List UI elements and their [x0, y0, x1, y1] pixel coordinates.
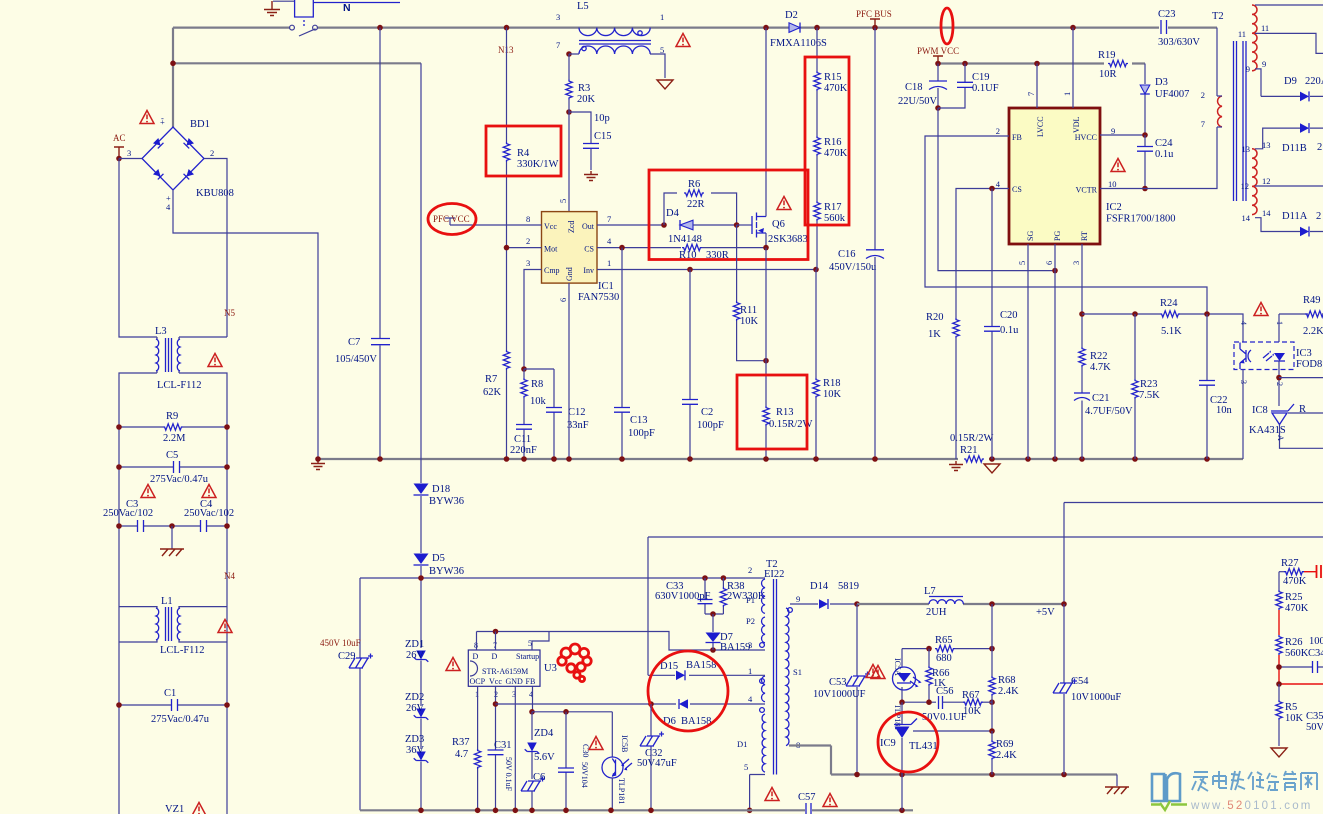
- svg-text:D1: D1: [737, 739, 747, 749]
- svg-text:D5: D5: [432, 553, 445, 564]
- svg-text:D11B: D11B: [1282, 143, 1307, 154]
- svg-text:R67: R67: [962, 690, 980, 701]
- svg-text:C19: C19: [972, 72, 990, 83]
- svg-text:470K: 470K: [1285, 603, 1309, 614]
- svg-text:L5: L5: [577, 1, 589, 12]
- svg-text:C16: C16: [838, 249, 856, 260]
- svg-text:10K: 10K: [1285, 713, 1304, 724]
- svg-text:C57: C57: [798, 792, 816, 803]
- svg-text:FMXA1106S: FMXA1106S: [770, 38, 827, 49]
- svg-text:TL431: TL431: [909, 741, 938, 752]
- svg-text:BA159: BA159: [720, 642, 750, 653]
- svg-text:10K: 10K: [823, 389, 842, 400]
- svg-text:3: 3: [1071, 261, 1081, 265]
- svg-text:C29: C29: [338, 651, 356, 662]
- svg-text:FB: FB: [1012, 133, 1022, 142]
- svg-text:220A: 220A: [1305, 76, 1323, 87]
- svg-text:14: 14: [1242, 213, 1251, 223]
- svg-text:D15: D15: [660, 661, 678, 672]
- svg-text:C21: C21: [1092, 393, 1110, 404]
- svg-text:R3: R3: [578, 83, 590, 94]
- svg-text:5: 5: [1017, 261, 1027, 265]
- svg-text:12: 12: [1241, 181, 1250, 191]
- svg-text:100pF: 100pF: [628, 428, 655, 439]
- svg-text:100pF: 100pF: [697, 420, 724, 431]
- svg-text:C18: C18: [905, 82, 923, 93]
- svg-text:C2: C2: [701, 407, 713, 418]
- svg-text:D11A: D11A: [1282, 211, 1308, 222]
- svg-text:220nF: 220nF: [510, 445, 537, 456]
- svg-text:R5: R5: [1285, 702, 1297, 713]
- svg-text:UF4007: UF4007: [1155, 89, 1189, 100]
- svg-text:FOD81: FOD81: [1296, 359, 1323, 370]
- svg-text:2UH: 2UH: [926, 607, 947, 618]
- svg-text:LVCC: LVCC: [1036, 116, 1045, 137]
- svg-text:303/630V: 303/630V: [1158, 37, 1200, 48]
- svg-text:S1: S1: [793, 667, 802, 677]
- svg-text:R24: R24: [1160, 298, 1178, 309]
- svg-text:C7: C7: [348, 337, 360, 348]
- svg-text:U3: U3: [544, 663, 557, 674]
- svg-text:AC: AC: [113, 133, 126, 143]
- svg-text:Vcc: Vcc: [544, 222, 557, 231]
- svg-text:N5: N5: [224, 308, 235, 318]
- svg-text:4.7K: 4.7K: [1090, 362, 1111, 373]
- svg-text:KBU808: KBU808: [196, 188, 234, 199]
- svg-text:BD1: BD1: [190, 119, 210, 130]
- svg-text:13: 13: [1262, 140, 1271, 150]
- svg-text:TLP181: TLP181: [617, 778, 626, 804]
- svg-text:R16: R16: [824, 137, 842, 148]
- svg-text:9: 9: [796, 594, 800, 604]
- svg-text:R19: R19: [1098, 50, 1116, 61]
- svg-text:VZ1: VZ1: [165, 804, 184, 814]
- svg-text:T2: T2: [1212, 11, 1224, 22]
- svg-text:10k: 10k: [530, 396, 547, 407]
- svg-text:7: 7: [607, 214, 611, 224]
- svg-text:IC5B: IC5B: [620, 735, 629, 752]
- svg-text:C35: C35: [1306, 711, 1323, 722]
- svg-text:330K/1W: 330K/1W: [517, 159, 559, 170]
- svg-text:5: 5: [744, 762, 748, 772]
- svg-text:26V: 26V: [406, 703, 425, 714]
- svg-text:C54: C54: [1071, 676, 1089, 687]
- svg-text:630V1000pF: 630V1000pF: [655, 591, 711, 602]
- svg-text:26V: 26V: [406, 650, 425, 661]
- svg-text:Q6: Q6: [772, 219, 785, 230]
- svg-text:100: 100: [1309, 636, 1323, 647]
- svg-text:10R: 10R: [1099, 69, 1117, 80]
- svg-text:CS: CS: [1012, 185, 1022, 194]
- svg-text:6: 6: [558, 298, 568, 302]
- svg-text:7: 7: [556, 40, 560, 50]
- svg-text:2: 2: [210, 148, 214, 158]
- svg-text:2: 2: [748, 565, 752, 575]
- svg-text:D: D: [473, 652, 479, 661]
- svg-text:BYW36: BYW36: [429, 566, 464, 577]
- svg-text:P2: P2: [746, 616, 755, 626]
- svg-text:Gnd: Gnd: [565, 267, 574, 281]
- svg-text:IC8: IC8: [1252, 405, 1268, 416]
- svg-text:C13: C13: [630, 415, 648, 426]
- svg-text:50V: 50V: [1306, 722, 1323, 733]
- svg-text:2.2K: 2.2K: [1303, 326, 1323, 337]
- svg-text:50V104: 50V104: [580, 762, 589, 788]
- svg-text:1: 1: [607, 258, 611, 268]
- svg-text:PFC BUS: PFC BUS: [856, 9, 892, 19]
- svg-text:D14: D14: [810, 581, 829, 592]
- svg-text:4: 4: [1239, 321, 1248, 325]
- svg-text:C53: C53: [829, 677, 847, 688]
- svg-text:560K: 560K: [1285, 648, 1309, 659]
- svg-text:1: 1: [748, 666, 752, 676]
- svg-text:PG: PG: [1053, 231, 1062, 241]
- svg-text:R: R: [1299, 404, 1306, 415]
- svg-text:A: A: [1276, 435, 1285, 441]
- svg-text:IC3: IC3: [1296, 348, 1312, 359]
- svg-text:5.6V: 5.6V: [534, 752, 555, 763]
- svg-text:R17: R17: [824, 202, 842, 213]
- svg-text:50V 0.1uF: 50V 0.1uF: [504, 757, 513, 792]
- svg-text:R22: R22: [1090, 351, 1108, 362]
- svg-text:3: 3: [127, 148, 131, 158]
- svg-text:2: 2: [1316, 211, 1321, 222]
- svg-text:12: 12: [1262, 176, 1271, 186]
- svg-text:C11: C11: [514, 434, 531, 445]
- svg-text:2.4K: 2.4K: [998, 686, 1019, 697]
- svg-text:R49: R49: [1303, 295, 1321, 306]
- svg-text:L3: L3: [155, 326, 167, 337]
- svg-text:10K: 10K: [740, 316, 759, 327]
- svg-text:680: 680: [936, 653, 952, 664]
- svg-text:22R: 22R: [687, 199, 705, 210]
- svg-text:Cmp: Cmp: [544, 266, 560, 275]
- svg-text:62K: 62K: [483, 387, 502, 398]
- svg-text:D: D: [492, 652, 498, 661]
- svg-text:20K: 20K: [577, 94, 596, 105]
- svg-text:IC9: IC9: [880, 738, 896, 749]
- svg-text:ZD1: ZD1: [405, 639, 424, 650]
- svg-text:CS: CS: [584, 245, 594, 254]
- svg-text:13: 13: [1242, 144, 1251, 154]
- svg-text:IC1: IC1: [598, 281, 614, 292]
- svg-text:BA158: BA158: [686, 660, 716, 671]
- svg-text:2: 2: [1317, 142, 1322, 153]
- svg-text:R23: R23: [1140, 379, 1158, 390]
- svg-text:R9: R9: [166, 411, 178, 422]
- svg-text:+5V: +5V: [1036, 607, 1055, 618]
- svg-text:N4: N4: [224, 571, 235, 581]
- svg-text:PFC VCC: PFC VCC: [433, 214, 470, 224]
- svg-text:C15: C15: [594, 131, 612, 142]
- svg-text:R26: R26: [1285, 637, 1303, 648]
- svg-text:C20: C20: [1000, 310, 1018, 321]
- svg-text:10: 10: [1108, 179, 1117, 189]
- svg-text:8: 8: [526, 214, 530, 224]
- svg-text:R4: R4: [517, 148, 530, 159]
- svg-text:0.1UF: 0.1UF: [972, 83, 999, 94]
- svg-text:R11: R11: [740, 305, 757, 316]
- svg-text:R37: R37: [452, 737, 470, 748]
- svg-text:C6: C6: [533, 772, 545, 783]
- svg-text:9: 9: [1262, 59, 1266, 69]
- svg-text:VDL: VDL: [1072, 116, 1081, 133]
- svg-text:7: 7: [1026, 92, 1036, 96]
- svg-text:FAN7530: FAN7530: [578, 292, 619, 303]
- svg-text:R69: R69: [996, 739, 1014, 750]
- svg-text:470K: 470K: [1283, 576, 1307, 587]
- svg-text:N: N: [343, 2, 351, 14]
- svg-text:C12: C12: [568, 407, 586, 418]
- svg-text:470K: 470K: [824, 148, 848, 159]
- svg-text:R25: R25: [1285, 592, 1303, 603]
- svg-text:ZD3: ZD3: [405, 734, 424, 745]
- svg-text:STR-A6159M: STR-A6159M: [482, 667, 528, 676]
- svg-text:D18: D18: [432, 484, 450, 495]
- svg-text:0.1u: 0.1u: [1000, 325, 1019, 336]
- svg-text:R6: R6: [688, 179, 700, 190]
- svg-text:D3: D3: [1155, 77, 1168, 88]
- svg-text:L1: L1: [161, 596, 173, 607]
- svg-text:4.7UF/50V: 4.7UF/50V: [1085, 406, 1133, 417]
- svg-text:IC2: IC2: [1106, 202, 1122, 213]
- svg-text:250Vac/102: 250Vac/102: [184, 508, 234, 519]
- svg-text:C31: C31: [494, 740, 512, 751]
- svg-text:R27: R27: [1281, 558, 1299, 569]
- svg-text:Mot: Mot: [544, 245, 558, 254]
- svg-text:22U/50V: 22U/50V: [898, 96, 938, 107]
- svg-text:C5: C5: [166, 450, 178, 461]
- svg-text:3: 3: [748, 640, 752, 650]
- svg-text:6: 6: [1044, 261, 1054, 265]
- svg-text:7.5K: 7.5K: [1139, 390, 1160, 401]
- svg-text:FSFR1700/1800: FSFR1700/1800: [1106, 214, 1175, 225]
- svg-text:C30: C30: [581, 744, 590, 757]
- svg-text:C23: C23: [1158, 9, 1176, 20]
- svg-text:560k: 560k: [824, 213, 846, 224]
- svg-text:R18: R18: [823, 378, 841, 389]
- svg-text:2: 2: [996, 126, 1000, 136]
- svg-text:250Vac/102: 250Vac/102: [103, 508, 153, 519]
- svg-text:1: 1: [1062, 92, 1072, 96]
- svg-text:C24: C24: [1155, 138, 1173, 149]
- svg-text:R68: R68: [998, 675, 1016, 686]
- svg-text:R13: R13: [776, 407, 794, 418]
- svg-text:2: 2: [1201, 90, 1205, 100]
- svg-text:ZD2: ZD2: [405, 692, 424, 703]
- svg-text:GND: GND: [506, 677, 524, 686]
- svg-text:5: 5: [558, 199, 568, 203]
- svg-text:11: 11: [1238, 29, 1246, 39]
- svg-text:D2: D2: [785, 10, 798, 21]
- svg-text:50V47uF: 50V47uF: [637, 758, 677, 769]
- svg-text:RT: RT: [1080, 231, 1089, 241]
- svg-text:PWM VCC: PWM VCC: [917, 46, 959, 56]
- svg-text:10p: 10p: [594, 113, 610, 124]
- svg-text:36V: 36V: [406, 745, 425, 756]
- svg-text:+: +: [160, 117, 165, 127]
- svg-text:2SK3683: 2SK3683: [768, 234, 808, 245]
- svg-text:BYW36: BYW36: [429, 496, 464, 507]
- svg-text:275Vac/0.47u: 275Vac/0.47u: [151, 714, 210, 725]
- svg-text:450V 10uF: 450V 10uF: [320, 638, 361, 648]
- svg-text:10K: 10K: [963, 706, 982, 717]
- svg-text:10V1000uF: 10V1000uF: [1071, 692, 1121, 703]
- svg-text:275Vac/0.47u: 275Vac/0.47u: [150, 474, 209, 485]
- svg-text:VCTR: VCTR: [1076, 186, 1098, 195]
- svg-text:11: 11: [1261, 23, 1269, 33]
- svg-text:R7: R7: [485, 374, 497, 385]
- svg-text:ZD4: ZD4: [534, 728, 554, 739]
- svg-text:TLP181: TLP181: [893, 704, 902, 730]
- svg-text:7: 7: [1201, 119, 1205, 129]
- svg-text:IC5A: IC5A: [893, 658, 902, 676]
- svg-text:C56: C56: [936, 686, 954, 697]
- svg-text:33nF: 33nF: [567, 420, 589, 431]
- svg-text:Inv: Inv: [583, 266, 594, 275]
- svg-text:5.1K: 5.1K: [1161, 326, 1182, 337]
- svg-text:Vcc: Vcc: [489, 677, 502, 686]
- svg-text:FB: FB: [526, 677, 536, 686]
- svg-text:10V1000UF: 10V1000UF: [813, 689, 866, 700]
- svg-text:R65: R65: [935, 635, 953, 646]
- svg-text:www.520101.com: www.520101.com: [1190, 800, 1313, 812]
- svg-text:L7: L7: [924, 586, 936, 597]
- svg-text:Startup: Startup: [516, 652, 539, 661]
- svg-text:1: 1: [660, 12, 664, 22]
- svg-text:470K: 470K: [824, 83, 848, 94]
- svg-text:SG: SG: [1026, 231, 1035, 241]
- svg-text:450V/150u: 450V/150u: [829, 262, 877, 273]
- svg-text:9: 9: [1246, 64, 1250, 74]
- svg-text:LCL-F112: LCL-F112: [157, 380, 202, 391]
- svg-text:OCP: OCP: [470, 677, 486, 686]
- svg-text:2.4K: 2.4K: [996, 750, 1017, 761]
- svg-text:10n: 10n: [1216, 405, 1233, 416]
- svg-text:C1: C1: [164, 688, 176, 699]
- svg-text:HVCC: HVCC: [1075, 133, 1097, 142]
- svg-text:R20: R20: [926, 312, 944, 323]
- svg-text:Zcd: Zcd: [567, 221, 576, 233]
- svg-text:2: 2: [526, 236, 530, 246]
- svg-text:4.7: 4.7: [455, 749, 468, 760]
- svg-text:3: 3: [526, 258, 530, 268]
- svg-text:2.2M: 2.2M: [163, 433, 186, 444]
- svg-text:C34: C34: [1308, 648, 1323, 659]
- svg-text:D9: D9: [1284, 76, 1297, 87]
- svg-text:D4: D4: [666, 208, 680, 219]
- svg-text:1K: 1K: [928, 329, 941, 340]
- svg-text:R21: R21: [960, 445, 978, 456]
- svg-text:EI22: EI22: [764, 569, 784, 580]
- svg-text:105/450V: 105/450V: [335, 354, 377, 365]
- svg-text:R8: R8: [531, 379, 543, 390]
- svg-text:LCL-F112: LCL-F112: [160, 645, 205, 656]
- svg-text:R15: R15: [824, 72, 842, 83]
- svg-text:14: 14: [1262, 208, 1271, 218]
- svg-text:0.1u: 0.1u: [1155, 149, 1174, 160]
- svg-text:3: 3: [556, 12, 560, 22]
- svg-text:Out: Out: [582, 222, 595, 231]
- svg-text:5819: 5819: [838, 581, 859, 592]
- svg-text:P1: P1: [746, 595, 755, 605]
